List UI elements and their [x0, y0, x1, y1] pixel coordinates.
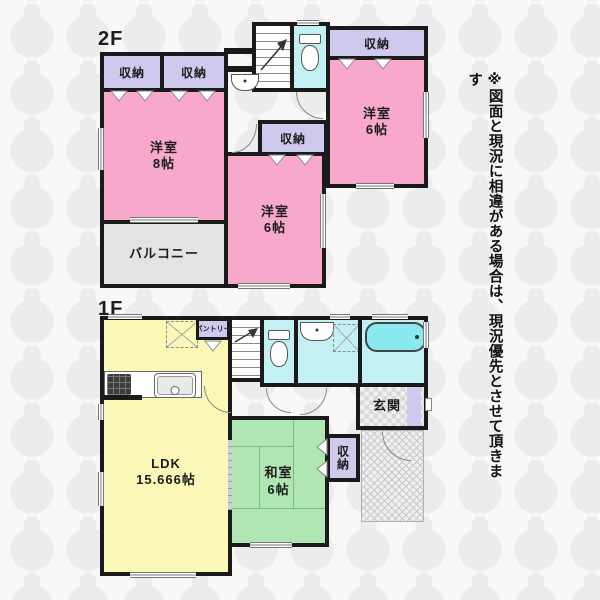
window [98, 128, 104, 170]
genkan-label: 玄関 [373, 398, 411, 414]
toilet-room-2f [290, 22, 330, 92]
sink-icon [154, 373, 196, 398]
shoe-cabinet [407, 387, 421, 426]
entrance-door-marker [425, 398, 432, 411]
fridge-space-dashed [166, 321, 198, 348]
bifold-door-marker [316, 438, 328, 456]
tatami-line [259, 446, 260, 508]
closet-2f-left-a: 収納 [100, 52, 164, 92]
window [130, 572, 196, 578]
bifold-door-marker [316, 460, 328, 478]
sliding-door [228, 440, 232, 510]
washer-space-dashed [333, 324, 360, 352]
bifold-door-marker [296, 154, 314, 166]
stairs-direction-arrow-icon [256, 26, 292, 88]
bifold-door-marker [204, 340, 222, 352]
closet-label: 収納 [181, 64, 207, 81]
ldk-label: LDK15.666帖 [100, 456, 232, 489]
stairs-1f [228, 316, 264, 382]
bifold-door-marker [110, 90, 128, 102]
room-label: 洋室6帖 [261, 204, 289, 237]
closet-2f-left-b: 収納 [160, 52, 228, 92]
tatami-line [293, 420, 294, 508]
bifold-door-marker [268, 154, 286, 166]
bifold-door-marker [170, 90, 188, 102]
door-swing [300, 388, 327, 415]
closet-2f-top-right: 収納 [326, 26, 428, 60]
toilet-icon [299, 34, 321, 71]
western-room-6-right: 洋室6帖 [326, 56, 428, 188]
window [297, 20, 319, 25]
closet-label: 収納 [280, 130, 306, 147]
western-room-8: 洋室8帖 [100, 88, 228, 224]
window [372, 314, 408, 319]
closet-1f: 収納 [326, 434, 360, 482]
room-label: 和室6帖 [264, 465, 292, 498]
toilet-room-1f [260, 316, 298, 387]
bifold-door-marker [136, 90, 154, 102]
wall-segment [104, 395, 142, 400]
window [238, 283, 290, 289]
window [108, 314, 142, 319]
closet-2f-mid: 収納 [258, 120, 328, 156]
window [320, 194, 326, 248]
window [356, 183, 394, 189]
window [130, 217, 198, 223]
closet-label: 収納 [335, 445, 352, 471]
bifold-door-marker [338, 58, 356, 70]
room-label: 洋室8帖 [150, 140, 178, 173]
bathtub-icon [365, 322, 426, 352]
tatami-line [232, 446, 294, 447]
washitsu-room: 和室6帖 [228, 416, 329, 547]
balcony-label: バルコニー [129, 246, 199, 262]
room-label: 洋室6帖 [363, 106, 391, 139]
stove-icon [107, 374, 131, 395]
washbasin-icon [300, 322, 334, 341]
floor-plan-page: 2F 収納 収納 洋室8帖 バルコニー 収納 洋室6帖 収納 [0, 0, 600, 600]
window [330, 314, 350, 319]
closet-label: 収納 [119, 64, 145, 81]
disclaimer-note: ※図面と現況に相違がある場合は、現況優先とさせて頂きます [464, 72, 505, 482]
window [98, 404, 104, 420]
western-room-6-mid: 洋室6帖 [224, 152, 326, 288]
pantry-label: パントリー [195, 324, 230, 334]
window [250, 542, 292, 548]
door-swing [296, 92, 323, 119]
door-swing [232, 124, 257, 153]
bifold-door-marker [374, 58, 392, 70]
bifold-door-marker [198, 90, 216, 102]
ldk-room [100, 316, 232, 576]
toilet-icon [268, 330, 290, 367]
closet-label: 収納 [364, 35, 390, 52]
tatami-line [232, 508, 325, 509]
stairs-direction-arrow-icon [232, 320, 262, 350]
door-swing [266, 388, 291, 413]
pantry: パントリー [196, 318, 230, 340]
floor-2f-label: 2F [98, 28, 123, 51]
balcony: バルコニー [100, 220, 228, 288]
window [423, 322, 429, 348]
window [423, 92, 429, 138]
window [98, 472, 104, 506]
